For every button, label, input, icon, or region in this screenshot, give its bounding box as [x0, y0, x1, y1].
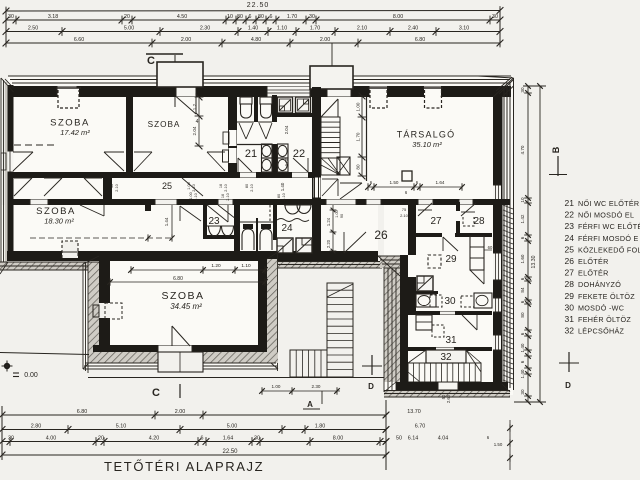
svg-text:SZOBA: SZOBA	[148, 120, 181, 129]
svg-text:10: 10	[227, 14, 233, 20]
svg-text:6: 6	[520, 360, 525, 363]
svg-text:24: 24	[281, 223, 293, 234]
svg-text:35.10 m²: 35.10 m²	[412, 140, 442, 149]
svg-text:ELŐTÉR: ELŐTÉR	[578, 269, 609, 278]
svg-text:40: 40	[110, 184, 114, 188]
svg-text:D: D	[368, 382, 374, 391]
svg-text:1.00: 1.00	[356, 102, 361, 111]
svg-text:23: 23	[208, 216, 220, 227]
svg-text:22: 22	[293, 148, 305, 160]
svg-text:1.40: 1.40	[520, 343, 525, 352]
svg-text:17.42 m²: 17.42 m²	[60, 128, 90, 137]
svg-text:1.64: 1.64	[223, 435, 234, 441]
svg-text:FEKETE ÖLTÖZ: FEKETE ÖLTÖZ	[578, 292, 635, 301]
svg-text:30: 30	[492, 14, 498, 20]
svg-text:FÉRFI MOSDÓ E: FÉRFI MOSDÓ E	[578, 234, 639, 243]
svg-text:6.14: 6.14	[408, 435, 419, 441]
svg-text:6: 6	[249, 14, 252, 20]
svg-text:2.40: 2.40	[408, 25, 418, 31]
svg-text:30: 30	[520, 87, 525, 93]
svg-text:20: 20	[98, 435, 104, 441]
svg-text:2.10: 2.10	[250, 184, 254, 191]
svg-text:6.60: 6.60	[74, 37, 84, 43]
svg-text:30: 30	[520, 389, 525, 395]
svg-text:1.40: 1.40	[520, 369, 525, 378]
svg-text:75: 75	[402, 207, 407, 212]
svg-text:30: 30	[8, 435, 14, 441]
svg-text:1.00: 1.00	[189, 192, 193, 199]
svg-text:2.30: 2.30	[312, 384, 321, 389]
svg-text:4.80: 4.80	[251, 37, 261, 43]
svg-text:22: 22	[565, 210, 575, 220]
svg-text:32: 32	[565, 326, 575, 336]
svg-text:32: 32	[440, 352, 452, 363]
svg-text:2.04: 2.04	[192, 126, 197, 135]
svg-text:ELŐTÉR: ELŐTÉR	[578, 257, 609, 266]
svg-text:29: 29	[445, 254, 457, 265]
svg-text:1.00: 1.00	[272, 384, 281, 389]
svg-text:25: 25	[565, 244, 575, 254]
svg-text:2.00: 2.00	[320, 37, 330, 43]
svg-text:1.64: 1.64	[436, 180, 445, 185]
svg-text:1.10: 1.10	[241, 263, 251, 269]
svg-text:DOHÁNYZÓ: DOHÁNYZÓ	[578, 280, 621, 289]
svg-text:21: 21	[245, 148, 257, 160]
svg-text:1.24: 1.24	[326, 217, 331, 226]
svg-text:2.10: 2.10	[357, 25, 367, 31]
svg-text:B: B	[551, 146, 561, 153]
svg-text:26: 26	[565, 256, 575, 266]
svg-text:MOSDÓ -WC: MOSDÓ -WC	[578, 303, 624, 312]
svg-text:16: 16	[219, 184, 223, 188]
svg-text:FEHÉR ÖLTÖZ: FEHÉR ÖLTÖZ	[578, 315, 631, 324]
svg-text:8.00: 8.00	[393, 14, 403, 20]
svg-text:13.30: 13.30	[531, 255, 537, 268]
svg-text:2.10: 2.10	[192, 184, 196, 191]
svg-text:TETŐTÉRI ALAPRAJZ: TETŐTÉRI ALAPRAJZ	[104, 459, 264, 474]
svg-text:KÖZLEKEDŐ FOL: KÖZLEKEDŐ FOL	[578, 245, 640, 254]
svg-text:27: 27	[430, 216, 442, 227]
svg-text:80: 80	[258, 14, 264, 20]
svg-text:30: 30	[309, 14, 315, 20]
svg-text:25: 25	[162, 181, 172, 191]
svg-text:SZOBA: SZOBA	[161, 290, 204, 302]
svg-text:90: 90	[340, 214, 344, 218]
svg-text:21: 21	[565, 198, 575, 208]
svg-text:2.00: 2.00	[181, 37, 191, 43]
svg-text:1.2: 1.2	[192, 103, 197, 110]
svg-text:4: 4	[196, 119, 199, 125]
svg-text:SZOBA: SZOBA	[50, 118, 90, 129]
svg-text:2.00: 2.00	[175, 409, 186, 415]
svg-text:2.10: 2.10	[282, 193, 286, 200]
svg-text:1.50: 1.50	[390, 180, 399, 185]
svg-text:29: 29	[565, 291, 575, 301]
svg-text:1.40: 1.40	[248, 25, 258, 31]
svg-text:NŐI WC ELŐTÉR: NŐI WC ELŐTÉR	[578, 199, 639, 208]
svg-text:5.10: 5.10	[116, 423, 127, 429]
svg-text:6: 6	[201, 435, 204, 441]
svg-text:A: A	[307, 400, 313, 409]
svg-text:2.20: 2.20	[326, 239, 331, 248]
svg-text:26: 26	[374, 228, 388, 242]
svg-text:3.10: 3.10	[459, 25, 469, 31]
svg-text:84: 84	[520, 287, 525, 293]
svg-text:30: 30	[444, 296, 456, 307]
svg-text:13.70: 13.70	[407, 409, 421, 415]
svg-text:5.00: 5.00	[124, 25, 134, 31]
svg-text:18.30 m²: 18.30 m²	[44, 217, 74, 226]
svg-text:22.50: 22.50	[247, 2, 270, 9]
svg-text:6.80: 6.80	[415, 37, 425, 43]
svg-text:1.00: 1.00	[187, 182, 191, 189]
svg-text:23: 23	[565, 221, 575, 231]
svg-text:C: C	[152, 387, 160, 399]
svg-text:LÉPCSŐHÁZ: LÉPCSŐHÁZ	[578, 327, 625, 336]
svg-text:60: 60	[488, 245, 493, 250]
svg-text:C: C	[147, 55, 155, 67]
svg-text:80: 80	[237, 14, 243, 20]
svg-text:1.70: 1.70	[310, 25, 320, 31]
svg-text:6: 6	[520, 332, 525, 335]
svg-text:FÉRFI WC ELŐTÉ: FÉRFI WC ELŐTÉ	[578, 222, 640, 231]
svg-text:6: 6	[520, 236, 525, 239]
svg-text:4.50: 4.50	[177, 14, 187, 20]
svg-text:2.60: 2.60	[446, 394, 451, 403]
svg-text:1.50: 1.50	[494, 442, 503, 447]
svg-text:4.00: 4.00	[46, 435, 57, 441]
svg-text:2.50: 2.50	[28, 25, 38, 31]
svg-text:80: 80	[245, 184, 249, 188]
svg-text:80: 80	[520, 312, 525, 318]
svg-text:1.70: 1.70	[287, 14, 297, 20]
svg-text:6: 6	[520, 277, 525, 280]
svg-text:80: 80	[277, 194, 281, 198]
svg-text:6.70: 6.70	[415, 423, 426, 429]
svg-text:8.00: 8.00	[333, 435, 344, 441]
svg-text:30: 30	[254, 435, 260, 441]
svg-text:22.50: 22.50	[222, 449, 238, 455]
svg-text:2.04: 2.04	[284, 125, 289, 134]
svg-text:1.42: 1.42	[520, 214, 525, 223]
svg-text:27: 27	[565, 268, 575, 278]
svg-text:10: 10	[520, 197, 525, 203]
svg-text:1.80: 1.80	[315, 423, 326, 429]
svg-text:20: 20	[124, 14, 130, 20]
svg-text:D: D	[565, 381, 571, 390]
svg-text:2.10: 2.10	[115, 184, 119, 191]
svg-text:NŐI MOSDÓ EL: NŐI MOSDÓ EL	[578, 211, 634, 220]
svg-text:2.10: 2.10	[194, 193, 198, 200]
svg-text:16: 16	[221, 194, 225, 198]
svg-text:28: 28	[473, 216, 485, 227]
svg-text:30: 30	[565, 302, 575, 312]
svg-text:1.60: 1.60	[520, 254, 525, 263]
svg-text:1.30: 1.30	[284, 157, 289, 166]
svg-text:1.20: 1.20	[211, 263, 221, 269]
svg-text:2.10: 2.10	[400, 213, 409, 218]
svg-text:2.10: 2.10	[226, 193, 230, 200]
svg-text:3.18: 3.18	[48, 14, 58, 20]
svg-text:SZOBA: SZOBA	[36, 206, 76, 217]
svg-text:1.70: 1.70	[356, 132, 361, 141]
svg-text:6: 6	[520, 300, 525, 303]
svg-text:4.70: 4.70	[520, 145, 525, 154]
svg-text:1.10: 1.10	[277, 25, 287, 31]
svg-text:2.10: 2.10	[224, 184, 228, 191]
svg-text:4.20: 4.20	[149, 435, 160, 441]
svg-text:31: 31	[445, 335, 457, 346]
svg-text:1.00: 1.00	[335, 210, 339, 217]
svg-text:34.45 m²: 34.45 m²	[170, 302, 202, 311]
svg-text:6: 6	[270, 14, 273, 20]
svg-text:1.40: 1.40	[280, 182, 285, 191]
svg-text:50: 50	[396, 435, 402, 441]
svg-text:6.80: 6.80	[173, 276, 183, 282]
svg-text:2.30: 2.30	[200, 25, 210, 31]
svg-text:TÁRSALGÓ: TÁRSALGÓ	[397, 130, 456, 140]
svg-text:1.44: 1.44	[164, 217, 169, 226]
svg-text:28: 28	[565, 279, 575, 289]
svg-text:30: 30	[8, 14, 14, 20]
svg-text:5.00: 5.00	[227, 423, 238, 429]
svg-text:6.80: 6.80	[77, 409, 88, 415]
svg-text:2.80: 2.80	[31, 423, 42, 429]
svg-text:80: 80	[356, 164, 361, 170]
svg-text:4.04: 4.04	[438, 435, 449, 441]
svg-text:24: 24	[565, 233, 575, 243]
svg-text:31: 31	[565, 314, 575, 324]
svg-text:0.00: 0.00	[24, 372, 38, 379]
